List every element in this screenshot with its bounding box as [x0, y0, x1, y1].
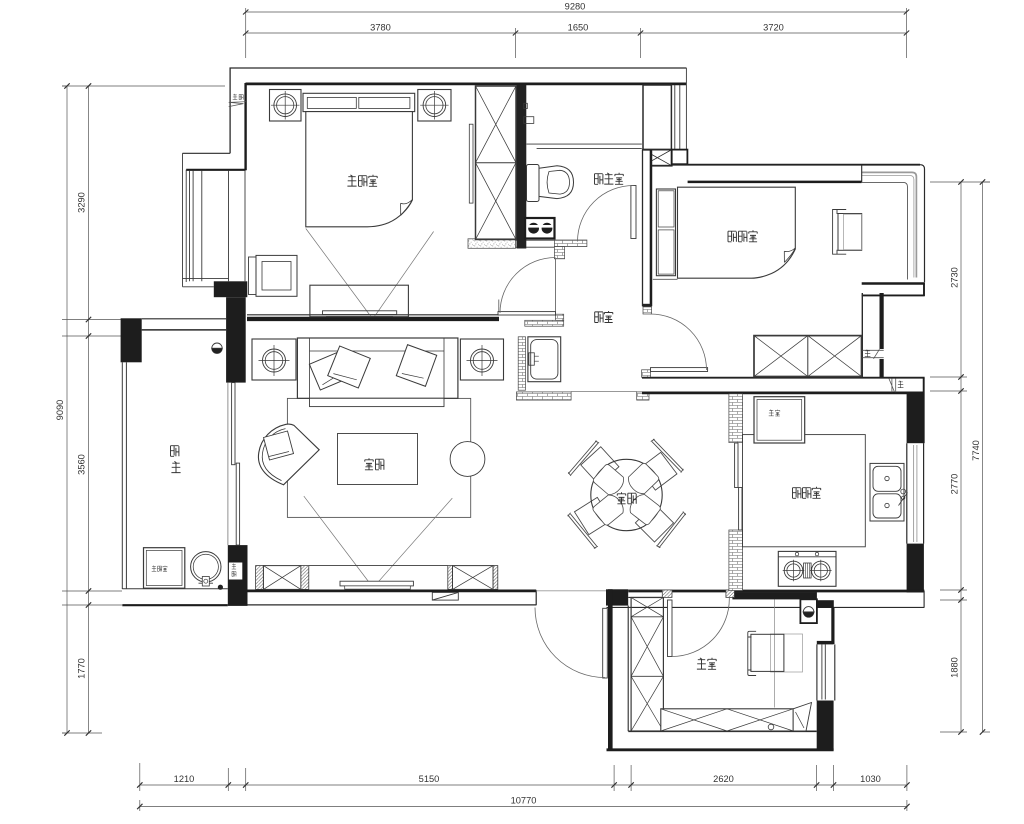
svg-text:3290: 3290	[77, 192, 87, 213]
svg-text:2770: 2770	[950, 474, 960, 495]
svg-text:1880: 1880	[950, 657, 960, 678]
svg-text:9280: 9280	[565, 2, 586, 12]
svg-text:2730: 2730	[950, 267, 960, 288]
svg-text:3780: 3780	[370, 23, 391, 33]
svg-text:2620: 2620	[713, 774, 734, 784]
svg-text:7740: 7740	[971, 440, 981, 461]
svg-text:1210: 1210	[174, 774, 195, 784]
svg-text:1650: 1650	[568, 23, 589, 33]
svg-text:3720: 3720	[763, 23, 784, 33]
svg-text:9090: 9090	[55, 400, 65, 421]
svg-text:10770: 10770	[511, 796, 537, 806]
svg-text:1770: 1770	[77, 658, 87, 679]
svg-text:5150: 5150	[419, 774, 440, 784]
svg-text:3560: 3560	[77, 454, 87, 475]
svg-text:1030: 1030	[860, 774, 881, 784]
